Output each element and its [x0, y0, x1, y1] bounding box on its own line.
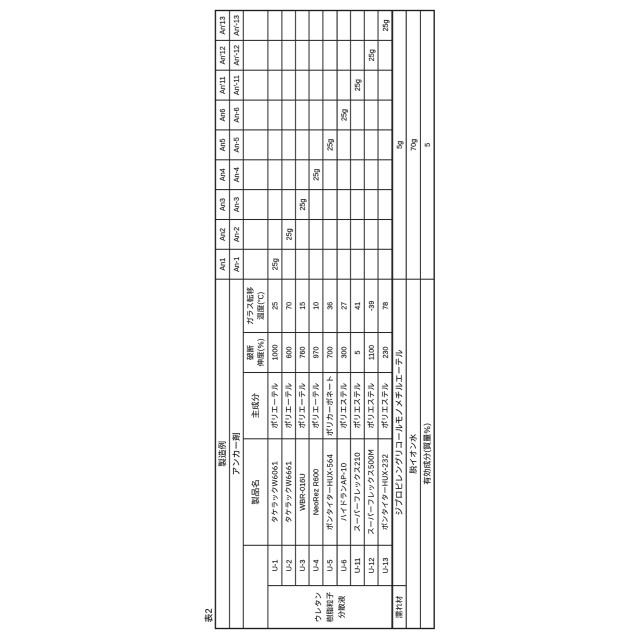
svg-text:600: 600 [285, 347, 293, 359]
svg-text:An2: An2 [218, 228, 227, 241]
svg-text:36: 36 [327, 302, 335, 310]
svg-text:An-5: An-5 [232, 137, 241, 152]
svg-text:NeoRez R600: NeoRez R600 [312, 469, 321, 515]
svg-text:U-4: U-4 [312, 560, 321, 572]
svg-text:25g: 25g [298, 199, 307, 211]
svg-text:970: 970 [312, 347, 320, 359]
svg-text:An'-12: An'-12 [232, 45, 241, 66]
svg-text:An5: An5 [218, 138, 227, 151]
svg-text:25g: 25g [284, 228, 293, 240]
svg-text:300: 300 [340, 347, 348, 359]
svg-text:5: 5 [354, 350, 362, 354]
svg-text:25: 25 [271, 302, 279, 310]
svg-text:27: 27 [340, 302, 348, 310]
svg-text:An'11: An'11 [218, 76, 227, 94]
svg-text:An3: An3 [218, 198, 227, 211]
svg-text:1000: 1000 [271, 345, 279, 361]
svg-text:15: 15 [299, 302, 307, 310]
svg-text:41: 41 [354, 302, 362, 310]
svg-text:1100: 1100 [368, 345, 376, 360]
svg-text:WBR-016U: WBR-016U [298, 473, 307, 510]
svg-text:U-1: U-1 [270, 560, 279, 572]
svg-text:An-2: An-2 [232, 227, 241, 242]
svg-text:700: 700 [327, 347, 335, 359]
svg-text:70g: 70g [409, 139, 418, 151]
svg-text:An'-13: An'-13 [232, 15, 241, 36]
svg-text:25g: 25g [270, 258, 279, 270]
svg-text:U-5: U-5 [326, 560, 335, 572]
svg-text:5g: 5g [395, 141, 404, 149]
svg-text:An'13: An'13 [218, 16, 227, 34]
svg-text:U-11: U-11 [353, 558, 362, 573]
svg-text:25g: 25g [326, 139, 335, 151]
svg-text:U-2: U-2 [284, 560, 293, 572]
svg-text:An-1: An-1 [232, 257, 241, 272]
svg-text:25g: 25g [339, 109, 348, 121]
svg-text:U-6: U-6 [339, 560, 348, 572]
svg-text:-39: -39 [368, 301, 376, 311]
svg-text:An4: An4 [218, 168, 227, 181]
svg-text:An'-11: An'-11 [232, 75, 241, 95]
svg-text:U-13: U-13 [381, 558, 390, 574]
svg-text:230: 230 [382, 347, 390, 359]
svg-text:5: 5 [423, 143, 432, 147]
svg-text:An'12: An'12 [218, 46, 227, 64]
svg-text:78: 78 [382, 302, 390, 310]
svg-text:An1: An1 [218, 258, 227, 271]
svg-text:70: 70 [285, 302, 293, 310]
svg-text:760: 760 [299, 347, 307, 359]
svg-text:25g: 25g [353, 79, 362, 91]
svg-text:An6: An6 [218, 109, 227, 122]
svg-text:U-3: U-3 [298, 560, 307, 572]
svg-text:25g: 25g [312, 169, 321, 181]
svg-text:25g: 25g [367, 49, 376, 61]
svg-text:U-12: U-12 [367, 558, 376, 574]
svg-text:An-3: An-3 [232, 197, 241, 212]
svg-text:10: 10 [312, 302, 320, 310]
svg-text:25g: 25g [381, 19, 390, 31]
svg-text:An-6: An-6 [232, 107, 241, 122]
svg-text:An-4: An-4 [232, 167, 241, 182]
